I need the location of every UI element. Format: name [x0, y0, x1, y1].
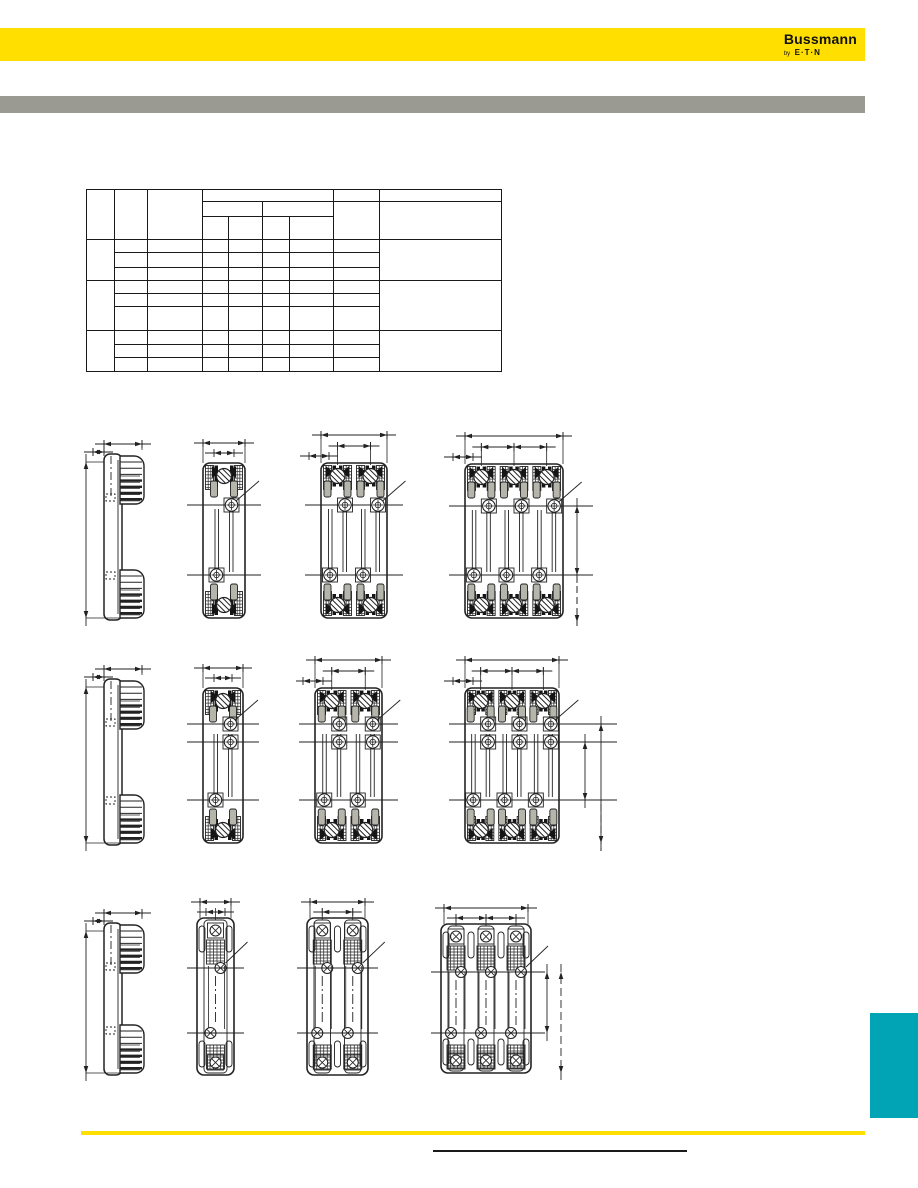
table-cell	[203, 358, 229, 372]
table-cell	[87, 331, 115, 372]
table-cell	[263, 331, 290, 345]
table-cell	[87, 240, 115, 281]
table-cell	[380, 240, 502, 281]
table-cell	[203, 202, 263, 217]
table-cell	[203, 240, 229, 253]
table-cell	[334, 190, 380, 202]
table-cell	[203, 345, 229, 358]
table-cell	[203, 217, 229, 240]
table-cell	[203, 268, 229, 281]
table-cell	[203, 307, 229, 331]
table-cell	[229, 345, 263, 358]
fuse-block-row1-2pole-front	[296, 428, 418, 630]
section-divider-bar	[0, 96, 865, 113]
table-cell	[203, 294, 229, 307]
footer-black-line	[433, 1150, 687, 1152]
fuse-block-row2-1pole-front	[186, 655, 282, 855]
table-cell	[229, 358, 263, 372]
table-cell	[263, 253, 290, 268]
table-cell	[115, 281, 148, 294]
table-cell	[334, 345, 380, 358]
table-cell	[290, 358, 334, 372]
table-cell	[290, 345, 334, 358]
table-cell	[263, 345, 290, 358]
spec-table-container	[86, 189, 502, 372]
table-cell	[290, 268, 334, 281]
table-cell	[148, 190, 203, 240]
table-cell	[203, 253, 229, 268]
fuse-block-row2-2pole-front	[296, 655, 418, 855]
table-cell	[380, 190, 502, 202]
table-cell	[87, 190, 115, 240]
table-cell	[263, 268, 290, 281]
table-cell	[263, 294, 290, 307]
table-cell	[148, 331, 203, 345]
table-cell	[380, 202, 502, 240]
table-cell	[290, 331, 334, 345]
table-cell	[290, 294, 334, 307]
bussmann-eaton-logo: Bussmann by E·T·N	[784, 33, 857, 59]
fuse-block-row2-3pole-front	[438, 655, 630, 857]
table-cell	[115, 345, 148, 358]
table-cell	[115, 190, 148, 240]
table-cell	[290, 217, 334, 240]
table-cell	[263, 217, 290, 240]
brand-byline: by E·T·N	[784, 46, 857, 59]
table-cell	[229, 294, 263, 307]
table-cell	[148, 253, 203, 268]
table-cell	[334, 281, 380, 294]
table-cell	[115, 331, 148, 345]
table-cell	[115, 253, 148, 268]
table-cell	[148, 307, 203, 331]
table-cell	[380, 331, 502, 372]
table-cell	[263, 358, 290, 372]
table-cell	[263, 281, 290, 294]
fuse-block-row3-2pole-front	[296, 896, 402, 1084]
table-cell	[290, 281, 334, 294]
table-cell	[115, 240, 148, 253]
table-cell	[334, 240, 380, 253]
table-cell	[334, 331, 380, 345]
table-cell	[334, 294, 380, 307]
table-cell	[148, 345, 203, 358]
table-cell	[229, 240, 263, 253]
fuse-block-row3-1pole-front	[186, 896, 274, 1084]
table-cell	[115, 358, 148, 372]
table-cell	[148, 281, 203, 294]
spec-table	[86, 189, 502, 372]
footer-yellow-rule	[81, 1131, 865, 1135]
table-cell	[203, 190, 334, 202]
table-cell	[148, 268, 203, 281]
table-cell	[229, 253, 263, 268]
table-cell	[263, 202, 334, 217]
byline-prefix: by	[784, 51, 790, 57]
table-cell	[229, 331, 263, 345]
fuse-block-row1-1pole-front	[186, 430, 282, 630]
table-cell	[334, 268, 380, 281]
table-cell	[334, 307, 380, 331]
table-cell	[229, 281, 263, 294]
table-cell	[334, 202, 380, 240]
table-cell	[87, 281, 115, 331]
table-cell	[263, 307, 290, 331]
table-cell	[203, 281, 229, 294]
table-cell	[290, 253, 334, 268]
table-cell	[203, 331, 229, 345]
table-cell	[380, 281, 502, 331]
table-cell	[290, 307, 334, 331]
eaton-logo-text: E·T·N	[795, 48, 821, 57]
fuse-block-row2-side-view	[78, 653, 200, 853]
fuse-block-row3-3pole-front	[424, 896, 574, 1084]
brand-header-bar: Bussmann by E·T·N	[0, 28, 865, 61]
table-cell	[148, 358, 203, 372]
table-cell	[229, 268, 263, 281]
table-cell	[229, 217, 263, 240]
table-cell	[115, 307, 148, 331]
table-cell	[263, 240, 290, 253]
table-cell	[115, 294, 148, 307]
page-edge-tab	[870, 1013, 918, 1118]
table-cell	[229, 307, 263, 331]
table-cell	[148, 294, 203, 307]
table-cell	[334, 358, 380, 372]
fuse-block-row3-side-view	[78, 896, 200, 1084]
fuse-block-row1-side-view	[78, 430, 200, 630]
table-cell	[334, 253, 380, 268]
datasheet-page: Bussmann by E·T·N	[0, 0, 918, 1188]
table-cell	[290, 240, 334, 253]
table-cell	[115, 268, 148, 281]
table-cell	[148, 240, 203, 253]
fuse-block-row1-3pole-front	[438, 428, 596, 632]
